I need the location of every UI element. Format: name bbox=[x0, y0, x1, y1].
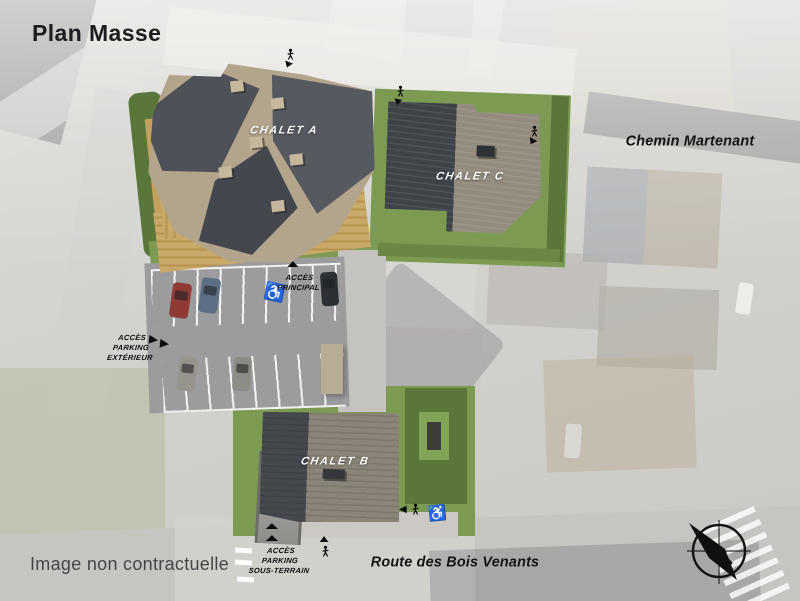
pedestrian-icon bbox=[321, 545, 330, 558]
pedestrian-access-marker-2: ▼ bbox=[393, 85, 405, 108]
arrow-icon-sous-terrain-2: ▲ bbox=[262, 534, 283, 544]
pedestrian-access-marker-3: ▼ bbox=[527, 125, 539, 148]
chalet-a-chimney-3 bbox=[249, 136, 263, 149]
chalet-b-roof-vent bbox=[322, 469, 344, 480]
chalet-a-label: CHALET A bbox=[249, 126, 319, 137]
chalet-a-chimney-6 bbox=[271, 200, 285, 213]
annex-building bbox=[321, 344, 343, 394]
page-title: Plan Masse bbox=[32, 22, 161, 45]
acces-parking-exterieur-line3: EXTÉRIEUR bbox=[107, 353, 154, 363]
chalet-a-chimney-5 bbox=[218, 166, 232, 179]
acces-parking-sous-terrain-line1: ACCÈS bbox=[250, 546, 312, 556]
car-red-windshield bbox=[174, 290, 188, 301]
acces-principal-label: ACCÈS PRINCIPAL bbox=[277, 273, 322, 293]
pedestrian-access-marker-5: ▲ bbox=[318, 535, 330, 558]
car-dark-windshield bbox=[323, 279, 335, 289]
chalet-c-roof-vent bbox=[477, 145, 495, 157]
arrow-left-icon: ◀ bbox=[399, 505, 407, 515]
arrow-up-icon: ▲ bbox=[315, 535, 333, 545]
spa-chalet-b-east bbox=[427, 422, 441, 450]
site-plan-canvas: ♿ ♿ ▲ ► ► ▲ ▲ ▼ ▼ ▼ ◀ ▲ CHALE bbox=[0, 0, 800, 601]
car-grey-2 bbox=[232, 356, 252, 391]
compass-north-icon: N bbox=[681, 518, 761, 590]
acces-parking-sous-terrain-line3: SOUS-TERRAIN bbox=[248, 566, 310, 576]
arrow-icon-parking-exterieur-2: ► bbox=[156, 335, 172, 351]
car-dark bbox=[320, 271, 339, 306]
chalet-a-chimney-2 bbox=[270, 97, 284, 110]
chalet-a-chimney-1 bbox=[230, 80, 244, 93]
pedestrian-access-marker-1: ▼ bbox=[283, 48, 295, 71]
wheelchair-icon-chalet-b: ♿ bbox=[427, 505, 447, 522]
disclaimer-text: Image non contractuelle bbox=[30, 555, 229, 573]
photo-car-white-right bbox=[735, 282, 754, 315]
car-grey-2-windshield bbox=[236, 364, 249, 374]
acces-principal-line1: ACCÈS bbox=[278, 273, 322, 283]
acces-parking-sous-terrain-line2: PARKING bbox=[249, 556, 311, 566]
street-label-route-des-bois-venants: Route des Bois Venants bbox=[371, 555, 540, 570]
photo-house-right-1 bbox=[583, 167, 723, 269]
pedestrian-access-marker-4: ◀ bbox=[399, 501, 420, 519]
arrow-down-icon: ▼ bbox=[390, 96, 409, 109]
chalet-c-label: CHALET C bbox=[435, 172, 505, 183]
street-label-chemin-martenant: Chemin Martenant bbox=[626, 134, 755, 149]
car-grey-1 bbox=[176, 356, 197, 392]
car-grey-1-windshield bbox=[181, 364, 194, 374]
road-dash-3 bbox=[237, 577, 254, 583]
pedestrian-icon bbox=[411, 503, 420, 516]
acces-parking-sous-terrain-label: ACCÈS PARKING SOUS-TERRAIN bbox=[248, 546, 312, 575]
arrow-icon-acces-principal: ▲ bbox=[284, 260, 303, 270]
chalet-b-label: CHALET B bbox=[300, 457, 370, 468]
acces-principal-line2: PRINCIPAL bbox=[277, 283, 321, 293]
arrow-icon-sous-terrain-1: ▲ bbox=[262, 522, 283, 532]
chalet-a-chimney-4 bbox=[289, 153, 303, 166]
photo-car-grey-right bbox=[564, 423, 582, 458]
car-blue-windshield bbox=[203, 285, 217, 296]
